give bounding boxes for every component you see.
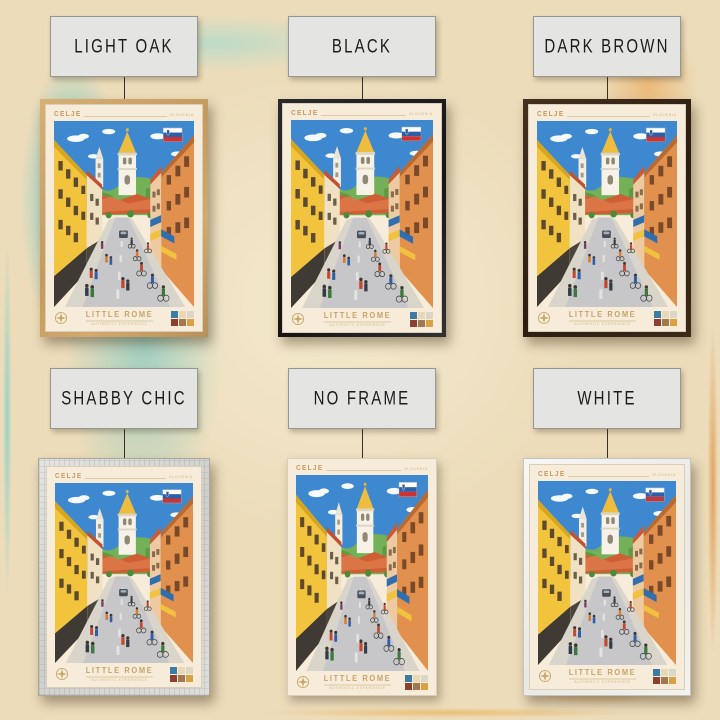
poster-tagline: AUTHENTIC EXPERIENCE <box>91 322 147 326</box>
variant-label-text: LIGHT OAK <box>74 36 174 58</box>
poster-header: CELJE SLOVENIA <box>291 110 433 117</box>
variant-label-text: SHABBY CHIC <box>61 388 187 410</box>
poster-country: SLOVENIA <box>169 475 193 479</box>
palette-swatch <box>669 669 676 676</box>
poster-artwork <box>291 120 433 308</box>
connector-line <box>124 77 125 99</box>
palette-swatch <box>654 311 661 318</box>
palette-swatch <box>426 320 433 327</box>
poster-footer-text: LITTLE ROME AUTHENTIC EXPERIENCE <box>73 666 166 682</box>
poster-frame-white: CELJE SLOVENIA <box>523 458 691 696</box>
palette-swatch <box>418 320 425 327</box>
poster-artwork <box>54 121 194 307</box>
poster-tagline: AUTHENTIC EXPERIENCE <box>574 680 630 684</box>
palette-swatch <box>186 675 193 682</box>
palette-swatch <box>662 319 669 326</box>
main-tower <box>602 512 619 554</box>
poster-frame-light-oak: CELJE SLOVENIA <box>40 99 208 337</box>
poster-print: CELJE SLOVENIA <box>287 458 437 696</box>
palette-swatch <box>426 312 433 319</box>
palette-swatch <box>405 675 412 682</box>
palette-swatch <box>179 311 186 318</box>
slovenia-flag-icon <box>399 482 417 496</box>
compass-icon <box>55 667 69 681</box>
poster-print: CELJE SLOVENIA <box>529 464 685 690</box>
poster-header: CELJE SLOVENIA <box>55 473 193 480</box>
header-rule <box>326 469 401 471</box>
palette-swatch <box>187 311 194 318</box>
car <box>119 589 128 596</box>
poster-print: CELJE SLOVENIA <box>46 466 202 688</box>
palette-swatch <box>670 319 677 326</box>
palette-swatch <box>187 319 194 326</box>
palette-swatch <box>670 311 677 318</box>
poster-country: SLOVENIA <box>652 473 676 477</box>
variant-label-text: DARK BROWN <box>544 36 669 58</box>
compass-icon <box>538 669 552 683</box>
palette-swatches <box>170 667 193 682</box>
palette-swatch <box>178 675 185 682</box>
palette-swatch <box>178 667 185 674</box>
palette-swatch <box>661 677 668 684</box>
poster-frame-no-frame: CELJE SLOVENIA <box>287 458 437 696</box>
variant-label-text: WHITE <box>577 388 636 410</box>
car <box>357 590 365 598</box>
variant-label-black: BLACK <box>288 16 436 77</box>
variant-label-no-frame: NO FRAME <box>288 368 436 429</box>
palette-swatch <box>418 312 425 319</box>
palette-swatches <box>410 312 433 327</box>
slovenia-flag-icon <box>646 128 665 141</box>
poster-print: CELJE SLOVENIA <box>528 104 686 332</box>
poster-frame-shabby-chic: CELJE SLOVENIA <box>38 458 210 696</box>
connector-line <box>607 77 608 99</box>
car <box>602 230 611 238</box>
variant-label-shabby-chic: SHABBY CHIC <box>50 368 198 429</box>
poster-artwork <box>538 481 676 665</box>
poster-tagline: AUTHENTIC EXPERIENCE <box>329 323 385 327</box>
palette-swatches <box>171 311 194 326</box>
palette-swatch <box>171 311 178 318</box>
poster-print: CELJE SLOVENIA <box>45 104 203 332</box>
poster-artwork <box>55 483 193 663</box>
palette-swatch <box>653 669 660 676</box>
car <box>119 230 128 238</box>
poster-title: CELJE <box>538 470 565 478</box>
car <box>602 589 611 596</box>
poster-nickname: LITTLE ROME <box>86 309 154 321</box>
poster-title: CELJE <box>55 472 82 480</box>
poster-country: SLOVENIA <box>404 467 428 471</box>
frame-options-mockup: LIGHT OAK CELJE SLOVENIA <box>0 0 720 720</box>
slovenia-flag-icon <box>163 490 181 503</box>
poster-header: CELJE SLOVENIA <box>538 471 676 478</box>
variant-label-light-oak: LIGHT OAK <box>50 16 198 77</box>
poster-nickname: LITTLE ROME <box>569 309 637 321</box>
header-rule <box>567 115 650 117</box>
connector-line <box>607 429 608 458</box>
palette-swatch <box>421 675 428 682</box>
palette-swatch <box>179 319 186 326</box>
header-rule <box>568 475 649 477</box>
palette-swatch <box>421 683 428 690</box>
main-tower <box>119 514 136 555</box>
variant-label-white: WHITE <box>533 368 681 429</box>
palette-swatch <box>410 312 417 319</box>
palette-swatch <box>669 677 676 684</box>
poster-header: CELJE SLOVENIA <box>296 465 428 472</box>
poster-footer-text: LITTLE ROME AUTHENTIC EXPERIENCE <box>309 311 406 327</box>
palette-swatch <box>654 319 661 326</box>
poster-tagline: AUTHENTIC EXPERIENCE <box>329 686 385 690</box>
poster-frame-black: CELJE SLOVENIA <box>278 99 446 337</box>
palette-swatch <box>410 320 417 327</box>
header-rule <box>85 477 166 479</box>
poster-title: CELJE <box>537 110 564 118</box>
poster-nickname: LITTLE ROME <box>324 673 392 685</box>
slovenia-flag-icon <box>163 128 182 141</box>
main-tower <box>119 153 137 195</box>
compass-icon <box>537 311 551 325</box>
connector-line <box>362 77 363 99</box>
connector-line <box>124 429 125 458</box>
poster-title: CELJE <box>54 110 81 118</box>
poster-tagline: AUTHENTIC EXPERIENCE <box>574 322 630 326</box>
poster-footer: LITTLE ROME AUTHENTIC EXPERIENCE <box>296 674 428 690</box>
poster-tagline: AUTHENTIC EXPERIENCE <box>91 678 147 682</box>
palette-swatch <box>661 669 668 676</box>
variant-label-text: NO FRAME <box>314 388 411 410</box>
compass-icon <box>291 312 305 326</box>
palette-swatch <box>405 683 412 690</box>
poster-footer-text: LITTLE ROME AUTHENTIC EXPERIENCE <box>72 310 167 326</box>
poster-footer: LITTLE ROME AUTHENTIC EXPERIENCE <box>55 666 193 682</box>
poster-footer: LITTLE ROME AUTHENTIC EXPERIENCE <box>538 668 676 684</box>
compass-icon <box>54 311 68 325</box>
variant-label-dark-brown: DARK BROWN <box>533 16 681 77</box>
poster-header: CELJE SLOVENIA <box>54 111 194 118</box>
slovenia-flag-icon <box>646 488 664 501</box>
poster-footer: LITTLE ROME AUTHENTIC EXPERIENCE <box>537 310 677 326</box>
palette-swatch <box>171 319 178 326</box>
poster-footer-text: LITTLE ROME AUTHENTIC EXPERIENCE <box>556 668 649 684</box>
palette-swatches <box>654 311 677 326</box>
palette-swatches <box>405 675 428 690</box>
palette-swatches <box>653 669 676 684</box>
poster-nickname: LITTLE ROME <box>86 665 154 677</box>
palette-swatch <box>186 667 193 674</box>
poster-footer-text: LITTLE ROME AUTHENTIC EXPERIENCE <box>314 674 401 690</box>
poster-country: SLOVENIA <box>170 113 194 117</box>
poster-title: CELJE <box>296 464 323 472</box>
palette-swatch <box>413 683 420 690</box>
poster-country: SLOVENIA <box>653 113 677 117</box>
poster-country: SLOVENIA <box>409 112 433 116</box>
palette-swatch <box>413 675 420 682</box>
palette-swatch <box>662 311 669 318</box>
palette-swatch <box>653 677 660 684</box>
main-tower <box>602 153 620 195</box>
header-rule <box>321 114 406 116</box>
poster-artwork <box>296 475 428 671</box>
poster-nickname: LITTLE ROME <box>324 310 392 322</box>
header-rule <box>84 115 167 117</box>
connector-line <box>362 429 363 458</box>
poster-footer: LITTLE ROME AUTHENTIC EXPERIENCE <box>291 311 433 327</box>
poster-title: CELJE <box>291 109 318 117</box>
main-tower <box>357 508 374 553</box>
compass-icon <box>296 675 310 689</box>
poster-artwork <box>537 121 677 307</box>
slovenia-flag-icon <box>402 127 421 141</box>
poster-footer: LITTLE ROME AUTHENTIC EXPERIENCE <box>54 310 194 326</box>
poster-footer-text: LITTLE ROME AUTHENTIC EXPERIENCE <box>555 310 650 326</box>
poster-header: CELJE SLOVENIA <box>537 111 677 118</box>
main-tower <box>356 152 374 195</box>
poster-frame-dark-brown: CELJE SLOVENIA <box>523 99 691 337</box>
poster-print: CELJE SLOVENIA <box>282 103 442 333</box>
car <box>357 231 366 239</box>
palette-swatch <box>170 667 177 674</box>
palette-swatch <box>170 675 177 682</box>
variant-label-text: BLACK <box>332 36 392 58</box>
poster-nickname: LITTLE ROME <box>569 667 637 679</box>
